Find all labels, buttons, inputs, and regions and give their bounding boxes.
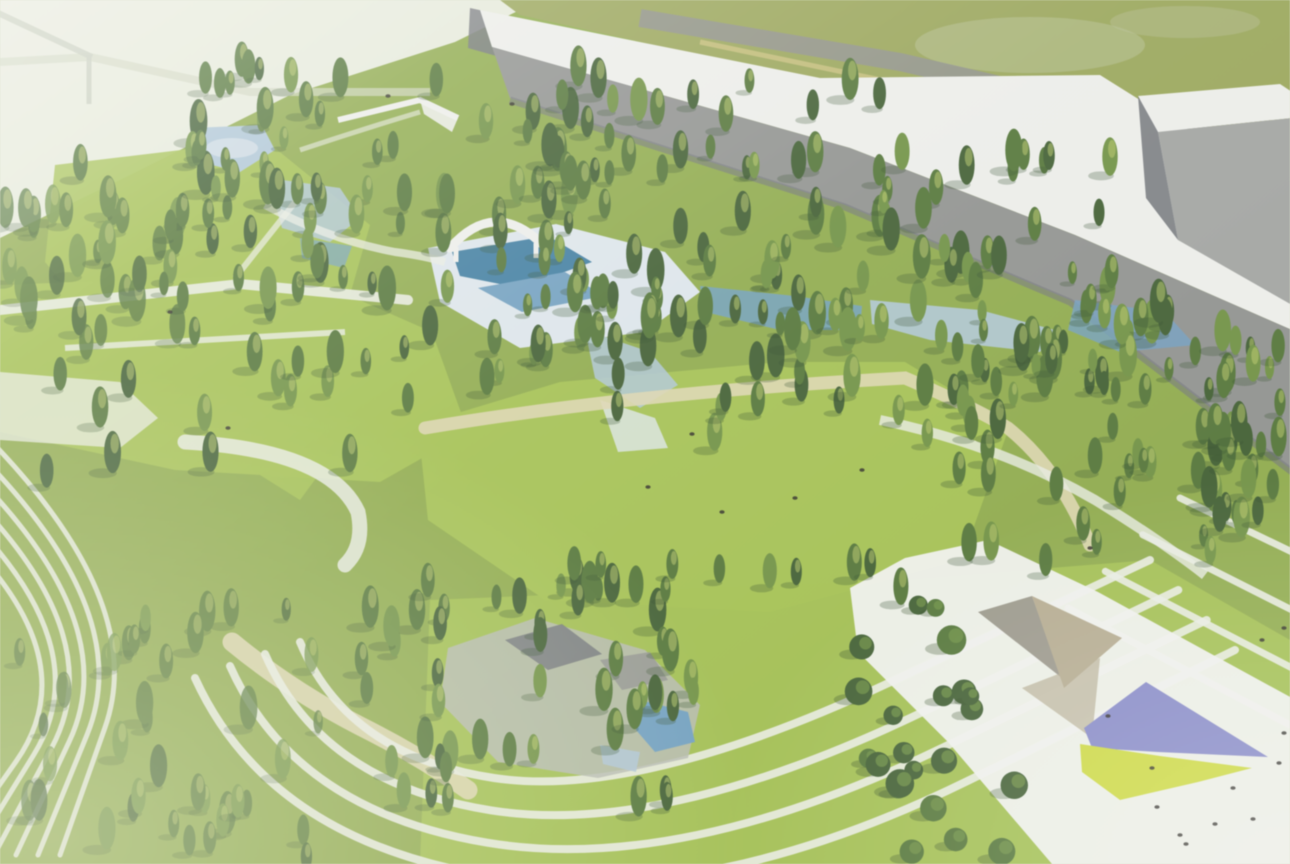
park-aerial-rendering (0, 0, 1290, 864)
park-rendering-stage (0, 0, 1290, 864)
haze-overall (0, 0, 1290, 864)
